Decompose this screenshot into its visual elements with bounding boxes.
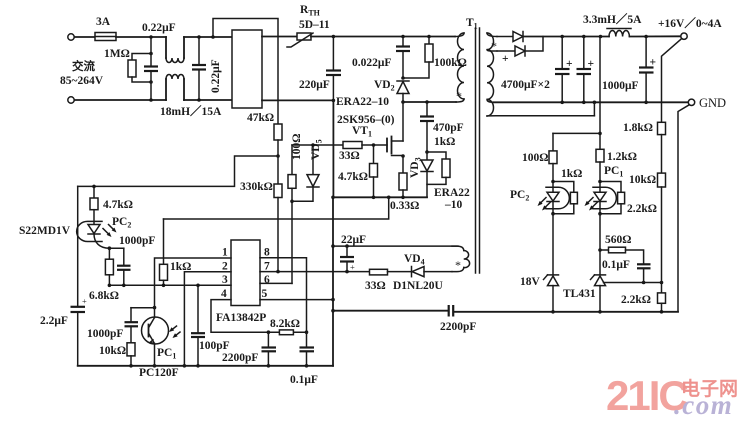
- svg-text:330kΩ: 330kΩ: [240, 181, 273, 193]
- svg-text:D1NL20U: D1NL20U: [393, 280, 444, 292]
- svg-text:1.8kΩ: 1.8kΩ: [623, 122, 653, 134]
- svg-text:2.2μF: 2.2μF: [40, 315, 68, 327]
- svg-text:100pF: 100pF: [199, 340, 230, 352]
- svg-text:3: 3: [222, 274, 228, 286]
- svg-text:2200pF: 2200pF: [440, 321, 476, 333]
- svg-text:6.8kΩ: 6.8kΩ: [89, 290, 119, 302]
- svg-text:0.1μF: 0.1μF: [290, 374, 318, 386]
- svg-text:1000pF: 1000pF: [87, 328, 123, 340]
- svg-text:ERA22: ERA22: [434, 187, 470, 199]
- svg-text:100Ω: 100Ω: [291, 134, 303, 160]
- svg-text:0.22μF: 0.22μF: [210, 59, 222, 93]
- svg-text:–10: –10: [444, 199, 463, 211]
- svg-text:+: +: [82, 296, 87, 306]
- svg-text:ERA22–10: ERA22–10: [336, 96, 389, 108]
- svg-text:1000pF: 1000pF: [119, 235, 155, 247]
- svg-text:PC120F: PC120F: [139, 367, 179, 379]
- svg-text:4.7kΩ: 4.7kΩ: [103, 199, 133, 211]
- svg-text:85~264V: 85~264V: [60, 75, 104, 87]
- svg-text:1MΩ: 1MΩ: [104, 48, 130, 60]
- svg-text:18V: 18V: [520, 276, 541, 288]
- svg-text:1kΩ: 1kΩ: [434, 136, 455, 148]
- svg-text:18mH／15A: 18mH／15A: [160, 104, 222, 118]
- svg-text:560Ω: 560Ω: [605, 234, 631, 246]
- svg-text:5: 5: [262, 288, 268, 300]
- svg-text:8: 8: [264, 247, 270, 259]
- svg-text:22μF: 22μF: [341, 234, 366, 246]
- svg-text:4: 4: [221, 288, 227, 300]
- svg-text:8.2kΩ: 8.2kΩ: [270, 318, 300, 330]
- svg-text:100Ω: 100Ω: [522, 152, 548, 164]
- svg-text:0.022μF: 0.022μF: [352, 57, 391, 69]
- svg-text:+16V／0~4A: +16V／0~4A: [658, 16, 722, 30]
- svg-text:1000μF: 1000μF: [602, 80, 639, 92]
- svg-text:0.1μF: 0.1μF: [602, 259, 630, 271]
- svg-text:*: *: [456, 89, 462, 103]
- svg-text:10kΩ: 10kΩ: [629, 174, 656, 186]
- svg-text:2: 2: [222, 261, 228, 273]
- svg-text:0.33Ω: 0.33Ω: [390, 200, 419, 212]
- svg-text:2.2kΩ: 2.2kΩ: [627, 203, 657, 215]
- svg-text:+: +: [650, 57, 657, 69]
- svg-text:GND: GND: [699, 96, 726, 110]
- svg-text:7: 7: [264, 261, 270, 273]
- svg-text:3.3mH／5A: 3.3mH／5A: [583, 12, 642, 26]
- svg-text:.com: .com: [674, 390, 733, 420]
- svg-text:1kΩ: 1kΩ: [561, 168, 582, 180]
- svg-text:5D–11: 5D–11: [299, 19, 330, 31]
- svg-text:2200pF: 2200pF: [222, 352, 258, 364]
- svg-text:+: +: [566, 58, 573, 70]
- svg-text:*: *: [491, 39, 497, 53]
- svg-text:470pF: 470pF: [433, 122, 464, 134]
- svg-text:220μF: 220μF: [299, 79, 330, 91]
- svg-text:33Ω: 33Ω: [339, 150, 360, 162]
- svg-text:4.7kΩ: 4.7kΩ: [338, 171, 368, 183]
- svg-text:+: +: [588, 58, 595, 70]
- svg-text:33Ω: 33Ω: [365, 280, 386, 292]
- svg-text:TL431: TL431: [563, 288, 596, 300]
- svg-text:FA13842P: FA13842P: [216, 312, 266, 324]
- svg-text:1kΩ: 1kΩ: [170, 261, 191, 273]
- svg-text:47kΩ: 47kΩ: [247, 112, 274, 124]
- svg-text:+: +: [502, 53, 509, 65]
- svg-text:4700μF×2: 4700μF×2: [501, 79, 550, 91]
- svg-text:+: +: [350, 262, 355, 272]
- svg-text:*: *: [455, 258, 461, 272]
- svg-text:1: 1: [222, 247, 228, 259]
- svg-text:1.2kΩ: 1.2kΩ: [607, 151, 637, 163]
- svg-text:交流: 交流: [72, 59, 95, 73]
- svg-text:6: 6: [264, 274, 270, 286]
- svg-text:S22MD1V: S22MD1V: [19, 225, 71, 237]
- svg-text:10kΩ: 10kΩ: [99, 345, 126, 357]
- svg-text:3A: 3A: [96, 16, 111, 28]
- svg-text:0.22μF: 0.22μF: [142, 22, 176, 34]
- svg-text:2.2kΩ: 2.2kΩ: [621, 294, 651, 306]
